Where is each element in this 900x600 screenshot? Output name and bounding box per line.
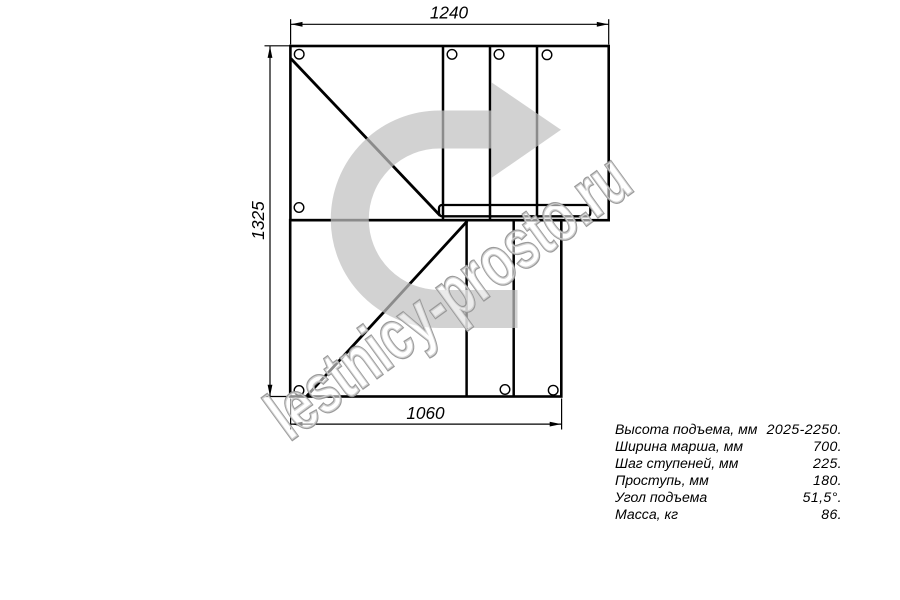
- svg-text:2025-2250.: 2025-2250.: [766, 421, 842, 437]
- svg-text:86.: 86.: [821, 506, 842, 522]
- svg-text:1240: 1240: [430, 3, 469, 23]
- svg-text:Ширина марша, мм: Ширина марша, мм: [615, 438, 743, 454]
- svg-text:51,5°.: 51,5°.: [803, 489, 842, 505]
- svg-text:1325: 1325: [248, 201, 268, 240]
- svg-text:225.: 225.: [812, 455, 842, 471]
- svg-text:700.: 700.: [813, 438, 842, 454]
- svg-text:1060: 1060: [406, 403, 445, 423]
- svg-text:Масса, кг: Масса, кг: [615, 506, 678, 522]
- svg-text:180.: 180.: [813, 472, 842, 488]
- svg-text:Угол подъема: Угол подъема: [614, 489, 707, 505]
- svg-text:Шаг ступеней, мм: Шаг ступеней, мм: [615, 455, 739, 471]
- svg-text:Высота подъема, мм: Высота подъема, мм: [615, 421, 758, 437]
- svg-text:Проступь, мм: Проступь, мм: [615, 472, 709, 488]
